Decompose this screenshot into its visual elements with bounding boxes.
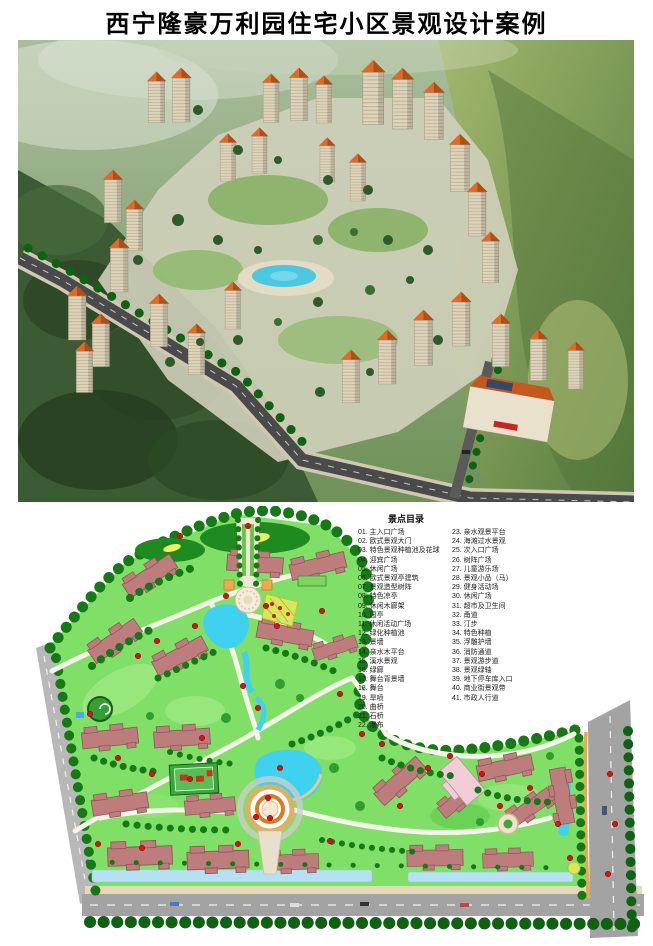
entrance-plaza (235, 587, 261, 613)
legend-item: 14. 亲水木平台 (358, 648, 452, 657)
legend-item: 36. 消防通道 (452, 648, 572, 657)
legend-item: 23. 亲水观景平台 (452, 528, 572, 537)
legend-item: 21. 石桥 (358, 712, 452, 721)
pergola (298, 576, 326, 586)
legend-item: 18. 舞台 (358, 684, 452, 693)
legend-item: 02. 欧式景观大门 (358, 537, 452, 546)
legend-item: 04. 迎宾广场 (358, 556, 452, 565)
legend-item: 41. 市政人行道 (452, 694, 572, 703)
legend-item: 08. 特色凉亭 (358, 592, 452, 601)
legend-item: 13. 景墙 (358, 638, 452, 647)
master-plan-image: 景点目录 01. 主入口广场02. 欧式景观大门03. 特色景观种植池及花球04… (30, 506, 646, 944)
legend-item: 10. 园亭 (358, 611, 452, 620)
aerial-rendering-svg (18, 40, 634, 502)
legend-item: 16. 绿廊 (358, 666, 452, 675)
legend-item: 05. 休闲广场 (358, 565, 452, 574)
legend-item: 29. 健身活动场 (452, 583, 572, 592)
legend-item: 15. 溪水景观 (358, 657, 452, 666)
legend-item: 28. 景观小品（马） (452, 574, 572, 583)
legend-title: 景点目录 (388, 512, 598, 525)
legend-item: 12. 绿化种植池 (358, 629, 452, 638)
legend-column-1: 01. 主入口广场02. 欧式景观大门03. 特色景观种植池及花球04. 迎宾广… (358, 528, 452, 730)
legend-item: 38. 景观绿轴 (452, 666, 572, 675)
aerial-rendering-image (18, 40, 634, 502)
legend-item: 37. 景观游步道 (452, 657, 572, 666)
legend-item: 19. 旱喷 (358, 694, 452, 703)
legend-item: 26. 树阵广场 (452, 556, 572, 565)
legend-item: 20. 曲桥 (358, 703, 452, 712)
legend-item: 22. 瀑布 (358, 721, 452, 730)
legend-item: 35. 浮雕护墙 (452, 638, 572, 647)
central-pond (238, 260, 334, 296)
legend-item: 33. 汀步 (452, 620, 572, 629)
gate-east (262, 580, 272, 590)
legend-panel: 景点目录 01. 主入口广场02. 欧式景观大门03. 特色景观种植池及花球04… (358, 512, 598, 730)
legend-item: 27. 儿童游乐场 (452, 565, 572, 574)
legend-column-2: 23. 亲水观景平台24. 海滩过水景观25. 次入口广场26. 树阵广场27.… (452, 528, 572, 730)
legend-item: 17. 舞台背景墙 (358, 675, 452, 684)
legend-item: 24. 海滩过水景观 (452, 537, 572, 546)
legend-item: 34. 特色种植 (452, 629, 572, 638)
legend-item: 31. 超市及卫生间 (452, 602, 572, 611)
page-title: 西宁隆豪万利园住宅小区景观设计案例 (0, 4, 653, 39)
roundabout (498, 814, 518, 834)
legend-item: 11. 休闲活动广场 (358, 620, 452, 629)
legend-item: 40. 商业街景观带 (452, 684, 572, 693)
legend-item: 06. 欧式景观亭建筑 (358, 574, 452, 583)
legend-item: 03. 特色景观种植池及花球 (358, 546, 452, 555)
legend-item: 32. 甬道 (452, 611, 572, 620)
legend-item: 07. 景观造型树阵 (358, 583, 452, 592)
legend-item: 09. 休闲木廊架 (358, 602, 452, 611)
legend-item: 25. 次入口广场 (452, 546, 572, 555)
legend-item: 39. 地下停车库入口 (452, 675, 572, 684)
legend-item: 30. 休闲广场 (452, 592, 572, 601)
sports-court (169, 763, 219, 795)
gate-west (224, 580, 234, 590)
legend-item: 01. 主入口广场 (358, 528, 452, 537)
